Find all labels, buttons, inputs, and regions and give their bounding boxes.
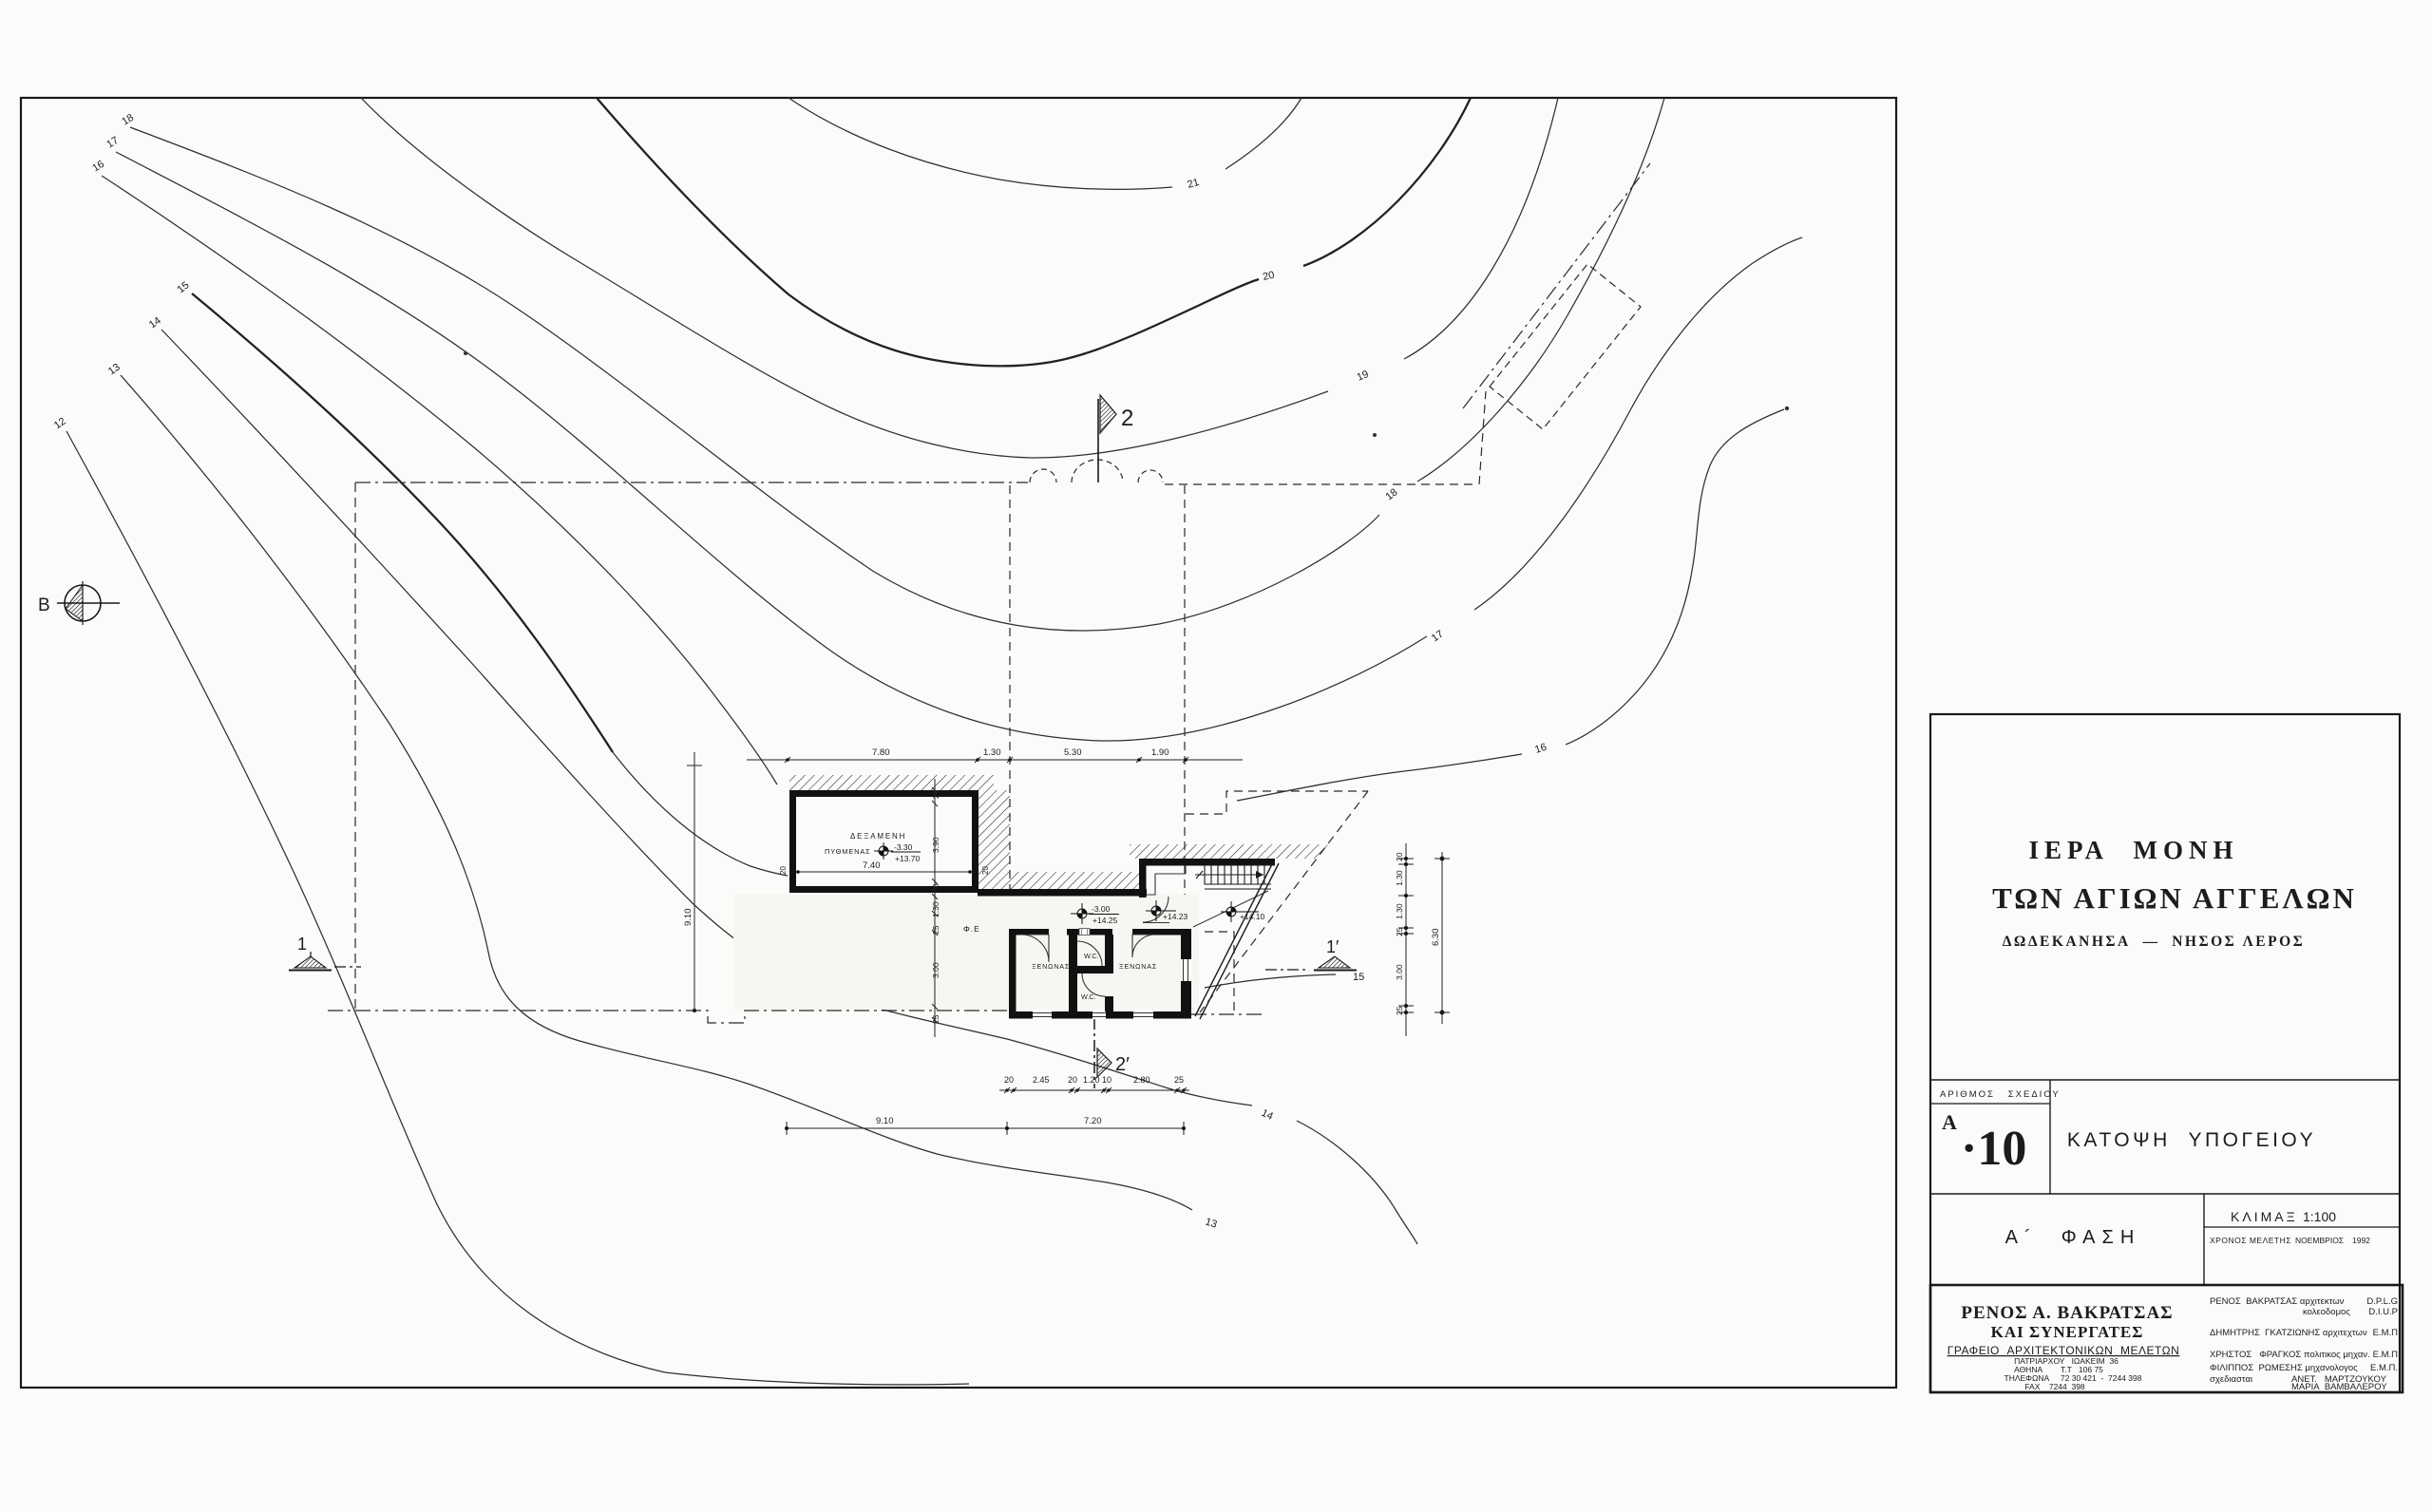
svg-text:15: 15	[1353, 972, 1364, 983]
svg-text:20: 20	[981, 866, 990, 875]
svg-text:3.90: 3.90	[931, 837, 940, 853]
svg-text:ΧΡΗΣΤΟΣ ΦΡΑΓΚΟΣ πολιτικος μη: ΧΡΗΣΤΟΣ ΦΡΑΓΚΟΣ πολιτικος μηχαν.	[2210, 1350, 2370, 1360]
svg-text:ΝΟΕΜΒΡΙΟΣ: ΝΟΕΜΒΡΙΟΣ	[2295, 1236, 2344, 1245]
svg-text:1: 1	[297, 935, 307, 954]
svg-text:1.30: 1.30	[931, 901, 940, 917]
svg-text:Α: Α	[1942, 1110, 1957, 1134]
svg-text:ΚΛΙΜΑΞ: ΚΛΙΜΑΞ	[2231, 1209, 2298, 1224]
svg-text:25: 25	[1395, 1006, 1404, 1015]
svg-text:1.30: 1.30	[1395, 903, 1404, 919]
svg-text:ΤΩΝ ΑΓΙΩΝ ΑΓΓΕΛΩΝ: ΤΩΝ ΑΓΙΩΝ ΑΓΓΕΛΩΝ	[1992, 881, 2357, 915]
svg-text:D.P.L.G: D.P.L.G	[2366, 1296, 2398, 1307]
svg-text:1′: 1′	[1326, 937, 1339, 956]
svg-text:6.30: 6.30	[1431, 929, 1441, 947]
svg-text:ΔΩΔΕΚΑΝΗΣΑ — ΝΗΣΟΣ ΛΕΡΟΣ: ΔΩΔΕΚΑΝΗΣΑ — ΝΗΣΟΣ ΛΕΡΟΣ	[2003, 934, 2306, 950]
svg-text:Α´ ΦΑΣΗ: Α´ ΦΑΣΗ	[2005, 1227, 2141, 1248]
svg-text:3.00: 3.00	[931, 962, 940, 978]
svg-text:25: 25	[1174, 1075, 1184, 1085]
svg-text:W.C.: W.C.	[1084, 952, 1099, 960]
svg-text:20: 20	[779, 866, 788, 875]
svg-text:7.20: 7.20	[1084, 1116, 1102, 1126]
svg-text:ΚΑΤΟΨΗ ΥΠΟΓΕΙΟΥ: ΚΑΤΟΨΗ ΥΠΟΓΕΙΟΥ	[2067, 1129, 2316, 1151]
svg-text:9.10: 9.10	[876, 1116, 894, 1126]
svg-text:ΔΕΞΑΜΕΝΗ: ΔΕΞΑΜΕΝΗ	[850, 832, 906, 841]
svg-text:ΞΕΝΩΝΑΣ: ΞΕΝΩΝΑΣ	[1032, 962, 1070, 971]
svg-text:2.80: 2.80	[1133, 1075, 1150, 1085]
svg-text:20: 20	[1068, 1075, 1077, 1085]
svg-text:Ε.Μ.Π.: Ε.Μ.Π.	[2370, 1363, 2398, 1373]
svg-text:ΚΑΙ ΣΥΝΕΡΓΑΤΕΣ: ΚΑΙ ΣΥΝΕΡΓΑΤΕΣ	[1991, 1323, 2144, 1341]
svg-text:3.00: 3.00	[1395, 964, 1404, 980]
svg-text:2.45: 2.45	[1033, 1075, 1050, 1085]
svg-text:20: 20	[931, 883, 940, 893]
svg-text:-3.00: -3.00	[1092, 904, 1111, 914]
svg-text:1992: 1992	[2352, 1236, 2370, 1245]
svg-text:25: 25	[931, 1014, 940, 1024]
svg-text:Ε.Μ.Π: Ε.Μ.Π	[2373, 1350, 2399, 1360]
svg-text:1.30: 1.30	[1395, 870, 1404, 886]
svg-text:ΔΗΜΗΤΡΗΣ ΓΚΑΤΖΙΩΝΗΣ αρχιτεχτω: ΔΗΜΗΤΡΗΣ ΓΚΑΤΖΙΩΝΗΣ αρχιτεχτων	[2210, 1328, 2367, 1338]
svg-text:κολεοδομος: κολεοδομος	[2303, 1307, 2350, 1317]
svg-text:20: 20	[1262, 270, 1275, 283]
svg-text:B: B	[38, 595, 50, 615]
svg-text:20: 20	[931, 789, 940, 799]
svg-text:ΠΥΘΜΕΝΑΣ: ΠΥΘΜΕΝΑΣ	[825, 847, 871, 856]
svg-text:D.I.U.P: D.I.U.P	[2368, 1307, 2398, 1317]
svg-text:25: 25	[1395, 927, 1404, 936]
svg-text:+14.10: +14.10	[1240, 912, 1265, 921]
svg-text:σχεδιασται: σχεδιασται	[2210, 1374, 2252, 1385]
svg-text:7.40: 7.40	[863, 860, 881, 871]
svg-text:25: 25	[931, 925, 940, 935]
svg-text:Ε.Μ.Π: Ε.Μ.Π	[2373, 1328, 2399, 1338]
svg-text:20: 20	[1004, 1075, 1014, 1085]
svg-text:+13.70: +13.70	[895, 854, 921, 863]
svg-text:FAX 7244 398: FAX 7244 398	[2024, 1382, 2085, 1391]
svg-text:-3.30: -3.30	[894, 842, 913, 852]
svg-text:·10: ·10	[1961, 1122, 2026, 1176]
svg-text:ΡΕΝΟΣ ΒΑΚΡΑΤΣΑΣ αρχιτεκτων: ΡΕΝΟΣ ΒΑΚΡΑΤΣΑΣ αρχιτεκτων	[2210, 1296, 2345, 1307]
svg-text:ΜΑΡΙΑ ΒΑΜΒΑΛΕΡΟΥ: ΜΑΡΙΑ ΒΑΜΒΑΛΕΡΟΥ	[2291, 1382, 2387, 1392]
svg-text:+14.23: +14.23	[1163, 912, 1188, 921]
svg-text:W.C.: W.C.	[1081, 992, 1096, 1001]
svg-text:9.10: 9.10	[683, 909, 693, 927]
svg-text:7.80: 7.80	[872, 747, 890, 758]
svg-text:ΡΕΝΟΣ Α. ΒΑΚΡΑΤΣΑΣ: ΡΕΝΟΣ Α. ΒΑΚΡΑΤΣΑΣ	[1961, 1303, 2173, 1323]
svg-text:1.20: 1.20	[1083, 1075, 1100, 1085]
svg-text:ΓΡΑΦΕΙΟ ΑΡΧΙΤΕΚΤΟΝΙΚΩΝ ΜΕΛΕΤ: ΓΡΑΦΕΙΟ ΑΡΧΙΤΕΚΤΟΝΙΚΩΝ ΜΕΛΕΤΩΝ	[1947, 1344, 2180, 1357]
svg-text:10: 10	[1102, 1075, 1111, 1085]
svg-text:ΑΡΙΘΜΟΣ ΣΧΕΔΙΟΥ: ΑΡΙΘΜΟΣ ΣΧΕΔΙΟΥ	[1940, 1089, 2061, 1100]
svg-text:5.30: 5.30	[1064, 747, 1082, 758]
svg-text:20: 20	[1395, 852, 1404, 861]
svg-text:+14.25: +14.25	[1092, 916, 1118, 925]
svg-text:2′: 2′	[1115, 1054, 1130, 1075]
svg-text:Φ.Ε: Φ.Ε	[963, 924, 980, 934]
svg-text:ΞΕΝΩΝΑΣ: ΞΕΝΩΝΑΣ	[1119, 962, 1157, 971]
svg-text:ΧΡΟΝΟΣ ΜΕΛΕΤΗΣ: ΧΡΟΝΟΣ ΜΕΛΕΤΗΣ	[2210, 1236, 2291, 1245]
svg-text:1:100: 1:100	[2303, 1209, 2336, 1224]
svg-text:2: 2	[1121, 406, 1133, 431]
svg-text:1.90: 1.90	[1151, 747, 1169, 758]
svg-text:ΦΙΛΙΠΠΟΣ ΡΩΜΕΣΗΣ μηχανολογος: ΦΙΛΙΠΠΟΣ ΡΩΜΕΣΗΣ μηχανολογος	[2210, 1363, 2358, 1373]
svg-text:1.30: 1.30	[983, 747, 1001, 758]
svg-text:ΙΕΡΑ ΜΟΝΗ: ΙΕΡΑ ΜΟΝΗ	[2028, 836, 2238, 864]
